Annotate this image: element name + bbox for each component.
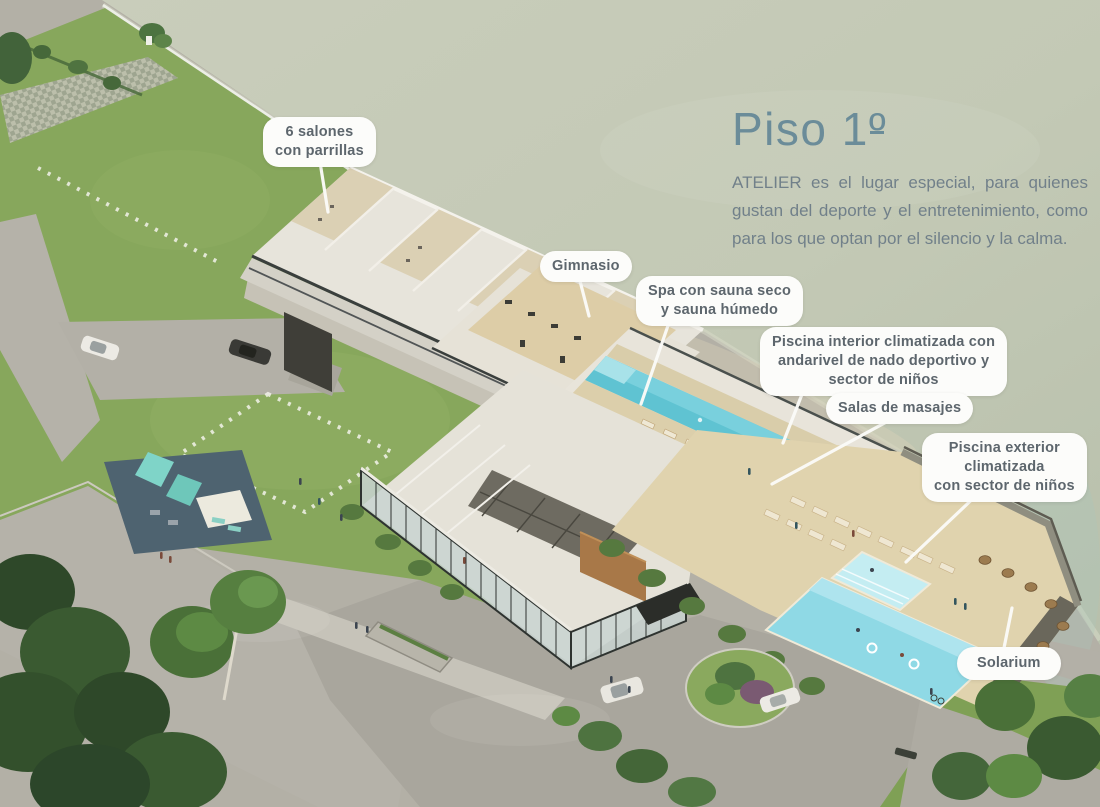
headline-block: Piso 1º ATELIER es el lugar especial, pa… — [732, 104, 1088, 253]
page-title-text: Piso 1 — [732, 103, 869, 155]
callout-spa: Spa con sauna seco y sauna húmedo — [636, 276, 803, 326]
driveway-island — [686, 649, 794, 727]
callout-gimnasio: Gimnasio — [540, 251, 632, 282]
page-description: ATELIER es el lugar especial, para quien… — [732, 169, 1088, 254]
callout-piscina-exterior: Piscina exterior climatizada con sector … — [922, 433, 1087, 502]
page-title-ordinal: º — [869, 104, 887, 155]
callout-piscina-interior: Piscina interior climatizada con andariv… — [760, 327, 1007, 396]
fitness-deck — [104, 450, 272, 554]
callout-solarium: Solarium — [957, 647, 1061, 680]
callout-salas-masajes: Salas de masajes — [826, 393, 973, 424]
brochure-page: Piso 1º ATELIER es el lugar especial, pa… — [0, 0, 1100, 807]
page-title: Piso 1º — [732, 104, 1088, 155]
callout-salones-parrillas: 6 salones con parrillas — [263, 117, 376, 167]
